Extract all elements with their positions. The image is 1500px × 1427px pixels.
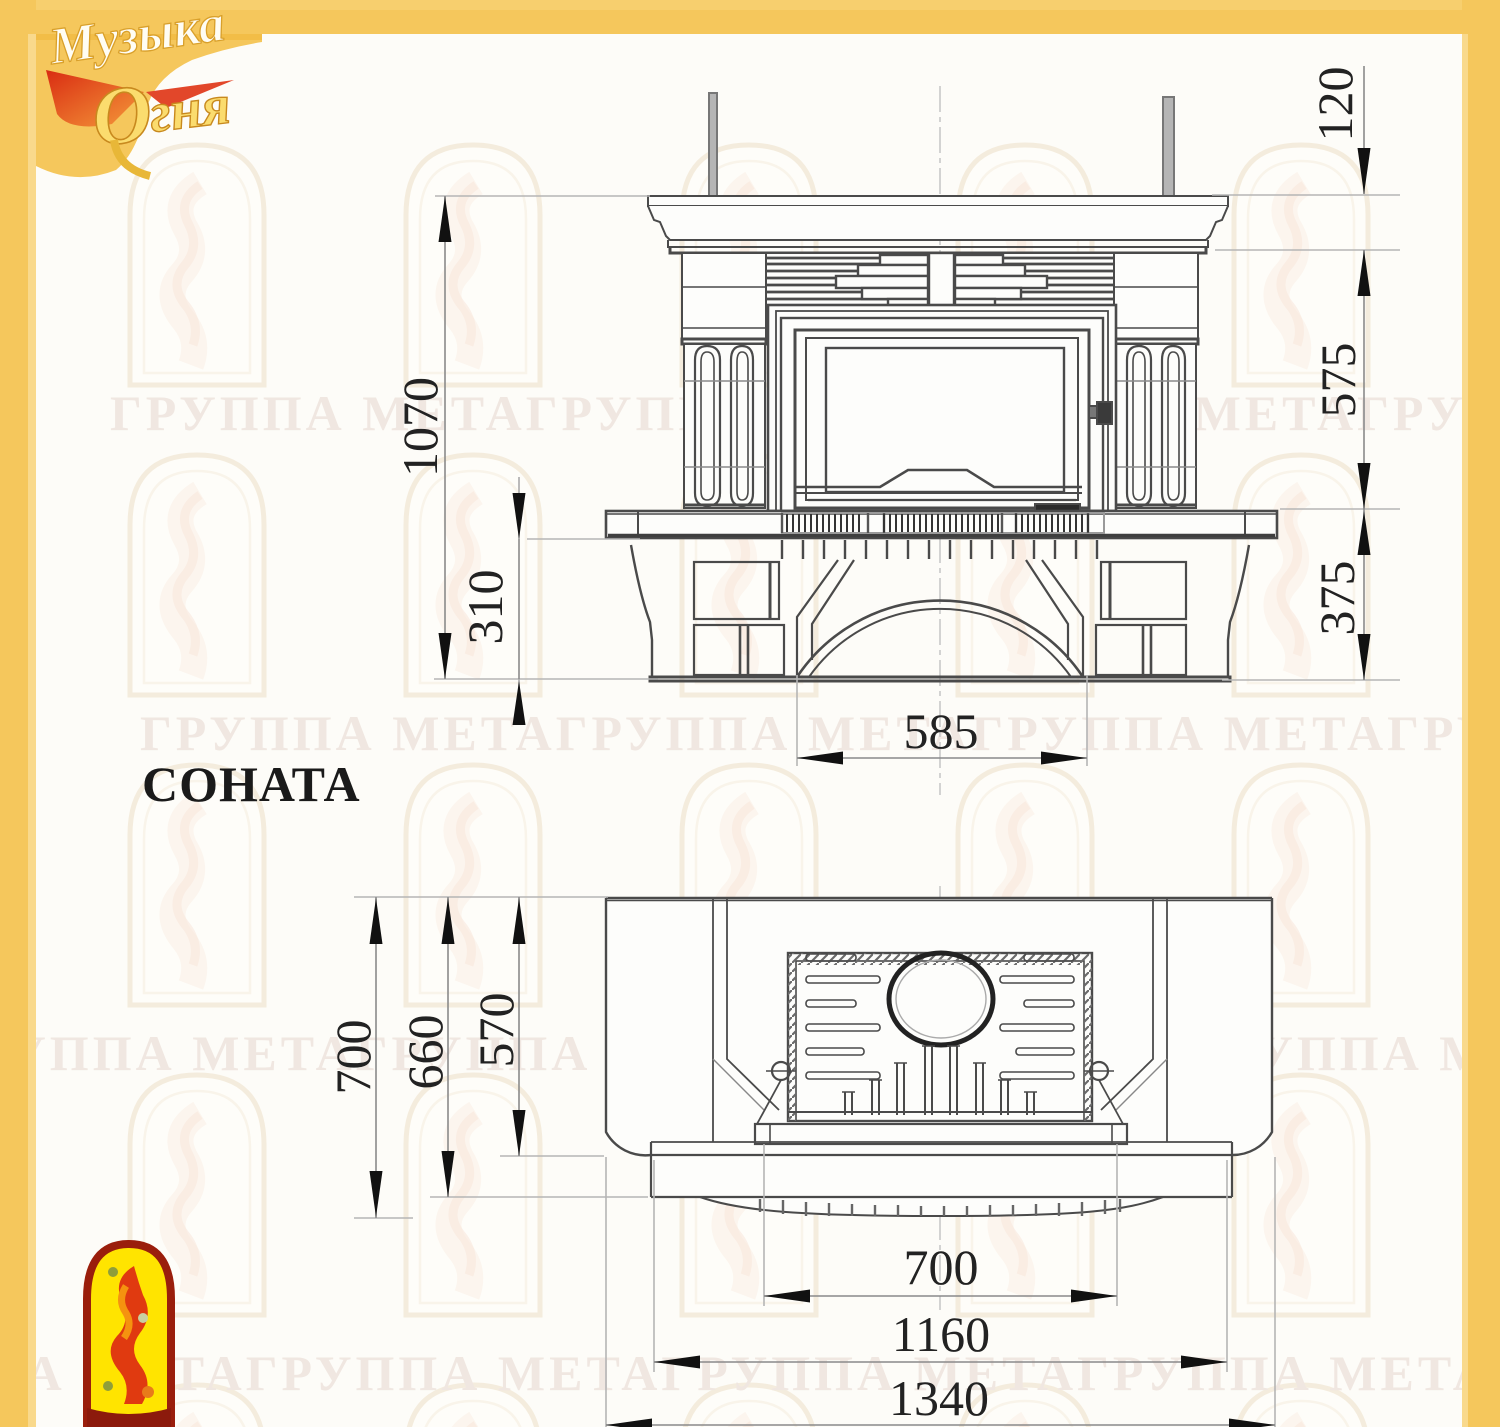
- svg-text:1070: 1070: [392, 377, 448, 477]
- svg-text:120: 120: [1307, 67, 1363, 142]
- svg-text:О: О: [87, 66, 157, 164]
- svg-text:570: 570: [468, 993, 524, 1068]
- svg-text:585: 585: [904, 703, 979, 759]
- svg-text:700: 700: [325, 1020, 381, 1095]
- svg-text:375: 375: [1309, 561, 1365, 636]
- svg-text:гня: гня: [146, 74, 234, 145]
- svg-text:310: 310: [457, 570, 513, 645]
- svg-text:СОНАТА: СОНАТА: [142, 756, 361, 812]
- svg-text:700: 700: [904, 1239, 979, 1295]
- svg-text:575: 575: [1310, 343, 1366, 418]
- svg-text:1160: 1160: [892, 1306, 990, 1362]
- svg-text:ГРУППА МЕТАГРУППА МЕТАГРУППА М: ГРУППА МЕТАГРУППА МЕТАГРУППА МЕТАГРУППА …: [140, 705, 1500, 761]
- svg-text:1340: 1340: [889, 1370, 989, 1426]
- svg-text:660: 660: [397, 1015, 453, 1090]
- svg-text:ГРУППА МЕТАГРУППА МЕТАГРУППА М: ГРУППА МЕТАГРУППА МЕТАГРУППА МЕТАГРУППА …: [0, 1345, 1493, 1401]
